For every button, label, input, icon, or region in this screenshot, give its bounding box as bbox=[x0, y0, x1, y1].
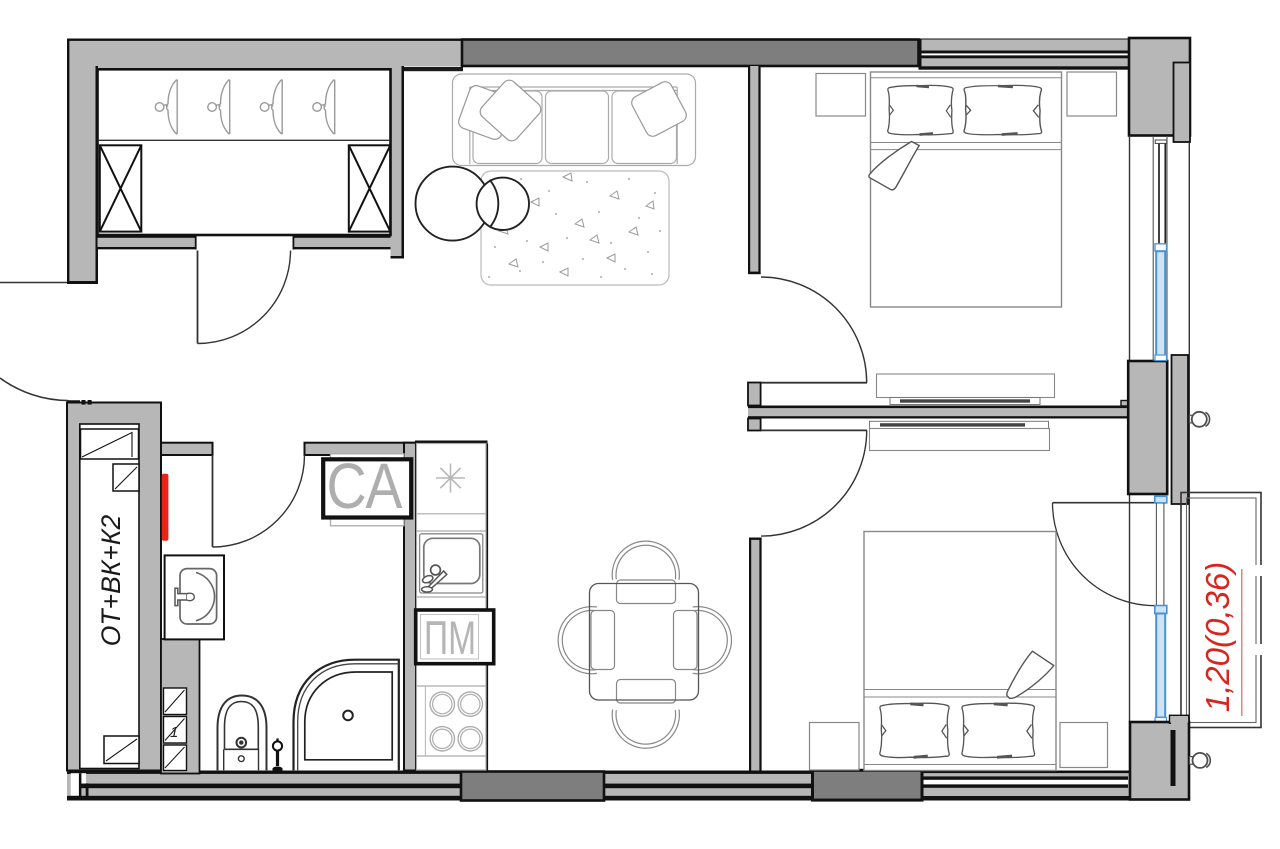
svg-text:1: 1 bbox=[170, 724, 178, 741]
svg-text:СА: СА bbox=[327, 450, 403, 522]
svg-text:1,20(0,36): 1,20(0,36) bbox=[1199, 562, 1236, 712]
svg-text:ПМ: ПМ bbox=[424, 611, 476, 664]
svg-text:ОТ+ВК+К2: ОТ+ВК+К2 bbox=[96, 515, 126, 647]
